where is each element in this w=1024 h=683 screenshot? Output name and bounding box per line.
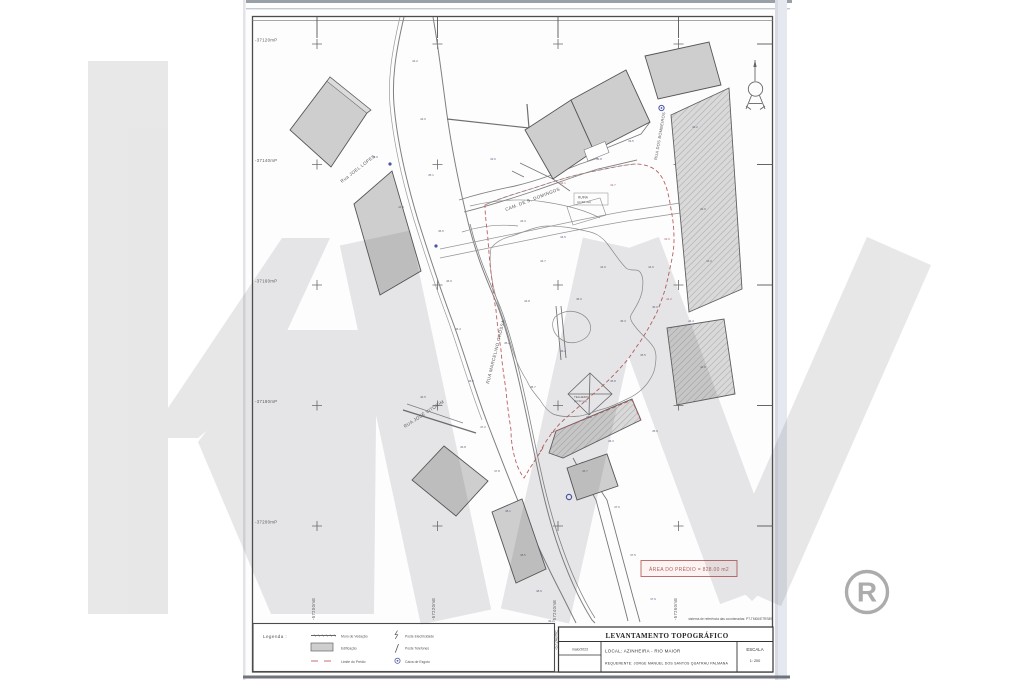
svg-text:RUINA: RUINA xyxy=(578,196,589,200)
svg-text:Legenda :: Legenda : xyxy=(263,634,287,639)
svg-text:46.4: 46.4 xyxy=(455,327,461,331)
svg-text:Poste Electricidade: Poste Electricidade xyxy=(405,634,434,638)
svg-text:sistema de referência das coor: sistema de referência das coordenadas: P… xyxy=(688,617,772,621)
svg-text:43.2: 43.2 xyxy=(692,125,698,129)
svg-text:44.6: 44.6 xyxy=(420,117,426,121)
svg-text:ESCALA: ESCALA xyxy=(746,647,763,652)
svg-text:Edificação: Edificação xyxy=(341,646,357,650)
svg-text:REQUERENTE: JORGE MANUEL D: REQUERENTE: JORGE MANUEL DOS SANTOS QUAT… xyxy=(605,662,729,666)
svg-text:47.9: 47.9 xyxy=(650,597,656,601)
svg-text:44.0: 44.0 xyxy=(706,259,712,263)
svg-text:44.5: 44.5 xyxy=(560,235,566,239)
svg-text:45.1: 45.1 xyxy=(428,173,434,177)
svg-text:R: R xyxy=(857,577,877,608)
svg-text:Limite do Prédio: Limite do Prédio xyxy=(341,660,366,664)
svg-text:47.8: 47.8 xyxy=(494,469,500,473)
svg-text:46.8: 46.8 xyxy=(460,445,466,449)
svg-text:44.1: 44.1 xyxy=(560,181,566,185)
svg-text:43.7: 43.7 xyxy=(610,183,616,187)
svg-text:45.7: 45.7 xyxy=(530,385,536,389)
svg-text:43.6: 43.6 xyxy=(700,207,706,211)
svg-text:47.2: 47.2 xyxy=(480,425,486,429)
svg-text:LEVANTAMENTO TOPOGRÁFICO: LEVANTAMENTO TOPOGRÁFICO xyxy=(605,632,728,640)
svg-text:43.6: 43.6 xyxy=(490,157,496,161)
svg-text:Caixa de Esgoto: Caixa de Esgoto xyxy=(405,660,430,664)
svg-text:43.9: 43.9 xyxy=(664,237,670,241)
svg-text:LOCAL: AZINHEIRA - RIO M: LOCAL: AZINHEIRA - RIO MAIOR xyxy=(605,649,681,654)
svg-text:44.2: 44.2 xyxy=(412,59,418,63)
svg-text:45.6: 45.6 xyxy=(438,229,444,233)
svg-text:48.1: 48.1 xyxy=(505,509,511,513)
svg-text:maio/2023: maio/2023 xyxy=(572,648,588,652)
svg-text:Muro de Vedação: Muro de Vedação xyxy=(341,634,368,638)
svg-text:-37120mP: -37120mP xyxy=(255,38,277,43)
svg-text:-37140mP: -37140mP xyxy=(255,158,277,163)
svg-text:-57260mE: -57260mE xyxy=(673,598,678,620)
svg-text:44.3: 44.3 xyxy=(520,219,526,223)
svg-text:43.9: 43.9 xyxy=(372,155,378,159)
svg-text:44.4: 44.4 xyxy=(398,205,404,209)
svg-text:Poste Telefones: Poste Telefones xyxy=(405,646,429,650)
svg-text:44.7: 44.7 xyxy=(540,259,546,263)
svg-text:1: 200: 1: 200 xyxy=(750,659,761,663)
svg-text:47.0: 47.0 xyxy=(614,505,620,509)
svg-text:43.5: 43.5 xyxy=(628,139,634,143)
svg-text:46.9: 46.9 xyxy=(468,379,474,383)
svg-text:44.8: 44.8 xyxy=(524,299,530,303)
svg-text:45.2: 45.2 xyxy=(504,341,510,345)
svg-text:47.5: 47.5 xyxy=(630,553,636,557)
svg-text:43.8: 43.8 xyxy=(596,157,602,161)
svg-text:46.0: 46.0 xyxy=(446,279,452,283)
